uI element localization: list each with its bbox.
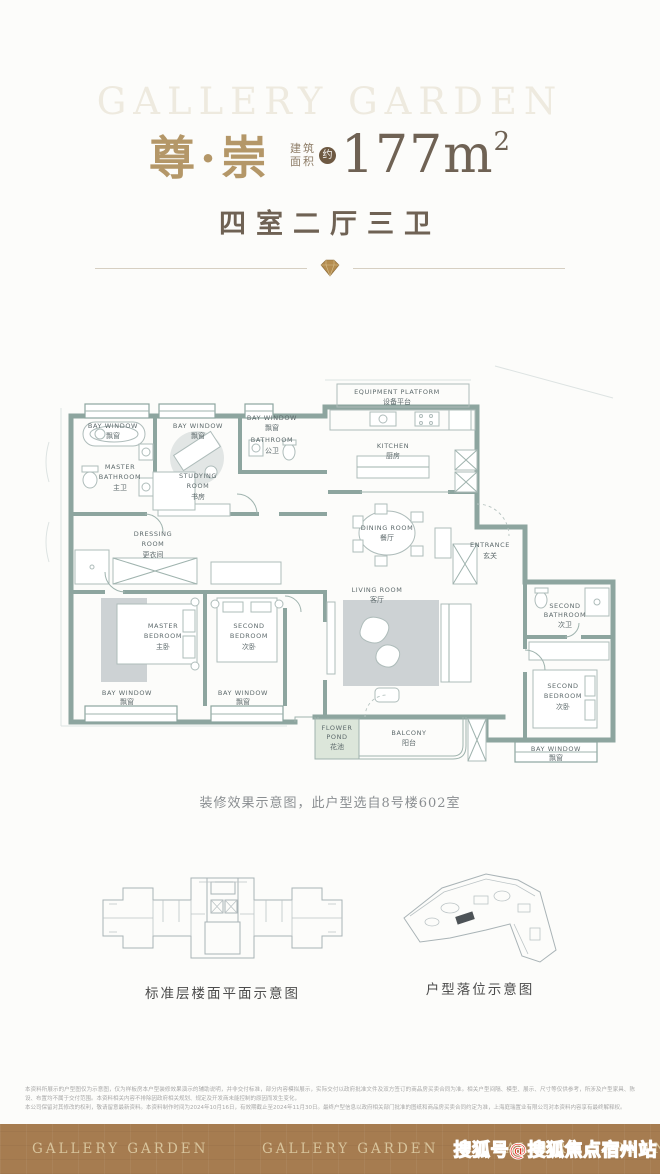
svg-text:FLOWER: FLOWER (322, 724, 353, 732)
svg-text:MASTER: MASTER (148, 622, 178, 630)
floorplan-drawing: BAY WINDOW 飘窗 BAY WINDOW 飘窗 BAY WINDOW 飘… (25, 352, 635, 800)
svg-text:厨房: 厨房 (386, 451, 400, 460)
svg-text:次卧: 次卧 (242, 642, 256, 651)
svg-text:BATHROOM: BATHROOM (99, 473, 141, 481)
divider-line-left (95, 268, 307, 269)
svg-text:BATHROOM: BATHROOM (544, 611, 586, 619)
svg-text:主卫: 主卫 (113, 483, 127, 492)
svg-text:EQUIPMENT PLATFORM: EQUIPMENT PLATFORM (354, 388, 440, 396)
disclaimer: 本资料所展示的户型图仅为示意图，仅为样板房本户型装修效果演示的辅助说明，并非交付… (25, 1086, 635, 1113)
svg-text:飘窗: 飘窗 (549, 753, 563, 762)
brand-watermark: GALLERY GARDEN (0, 80, 660, 123)
svg-text:ROOM: ROOM (142, 540, 165, 548)
site-location-caption: 户型落位示意图 (390, 978, 570, 998)
svg-text:LIVING ROOM: LIVING ROOM (352, 586, 403, 594)
svg-text:ROOM: ROOM (187, 482, 210, 490)
svg-text:设备平台: 设备平台 (383, 397, 411, 406)
svg-text:DRESSING: DRESSING (134, 530, 173, 538)
svg-text:SECOND: SECOND (233, 622, 264, 630)
svg-text:BAY WINDOW: BAY WINDOW (247, 414, 297, 422)
svg-text:STUDYING: STUDYING (179, 472, 217, 480)
svg-text:主卧: 主卧 (156, 642, 170, 651)
master-bedroom-furniture (101, 598, 199, 682)
page-title: 尊·崇 (149, 122, 272, 188)
svg-text:POND: POND (326, 733, 347, 741)
svg-text:BAY WINDOW: BAY WINDOW (173, 422, 223, 430)
svg-text:更衣间: 更衣间 (143, 550, 164, 559)
second-bedroom-furniture (211, 598, 283, 662)
svg-text:BAY WINDOW: BAY WINDOW (88, 422, 138, 430)
svg-text:阳台: 阳台 (402, 738, 416, 747)
svg-text:书房: 书房 (191, 492, 205, 501)
svg-text:SECOND: SECOND (547, 682, 578, 690)
svg-text:BEDROOM: BEDROOM (544, 692, 582, 700)
svg-text:BEDROOM: BEDROOM (230, 632, 268, 640)
svg-text:BAY WINDOW: BAY WINDOW (531, 745, 581, 753)
sohu-watermark: 搜狐号@搜狐焦点宿州站 (454, 1136, 658, 1162)
room-summary: 四室二厅三卫 (0, 202, 660, 241)
site-location-diagram (390, 858, 570, 976)
svg-text:次卫: 次卫 (558, 620, 572, 629)
disclaimer-line-2: 本公司保留对其修改的权利，敬请留意最新资料。本资料制作时间为2024年10月16… (25, 1104, 635, 1113)
svg-text:玄关: 玄关 (483, 551, 497, 560)
living-room-furniture (327, 600, 471, 702)
floor-plate-diagram (95, 862, 350, 974)
svg-text:BATHROOM: BATHROOM (251, 436, 293, 444)
divider (0, 258, 660, 278)
unit-location-marker (455, 911, 475, 924)
svg-text:ENTRANCE: ENTRANCE (470, 541, 510, 549)
area-value: 177m2 (341, 129, 511, 181)
gem-icon (317, 258, 343, 278)
svg-text:飘窗: 飘窗 (265, 423, 279, 432)
svg-text:公卫: 公卫 (265, 447, 279, 455)
svg-text:飘窗: 飘窗 (191, 431, 205, 440)
svg-text:次卧: 次卧 (556, 702, 570, 711)
svg-text:飘窗: 飘窗 (236, 697, 250, 706)
area-label: 建筑 面积 (290, 142, 316, 168)
footer-logo-2: GALLERY GARDEN (262, 1141, 438, 1157)
decor-note: 装修效果示意图，此户型选自8号楼602室 (0, 792, 660, 811)
title-row: 尊·崇 建筑 面积 约 177m2 (0, 122, 660, 188)
svg-text:BAY WINDOW: BAY WINDOW (102, 689, 152, 697)
approx-badge: 约 (319, 147, 336, 164)
svg-text:MASTER: MASTER (105, 463, 135, 471)
footer-logo-1: GALLERY GARDEN (32, 1141, 208, 1157)
svg-text:客厅: 客厅 (370, 595, 384, 604)
svg-text:KITCHEN: KITCHEN (377, 442, 409, 450)
svg-text:BALCONY: BALCONY (391, 729, 426, 737)
svg-text:飘窗: 飘窗 (120, 697, 134, 706)
disclaimer-line-1: 本资料所展示的户型图仅为示意图，仅为样板房本户型装修效果演示的辅助说明，并非交付… (25, 1086, 635, 1104)
svg-text:花池: 花池 (330, 742, 344, 751)
svg-text:飘窗: 飘窗 (106, 431, 120, 440)
area-group: 建筑 面积 约 177m2 (290, 129, 511, 181)
poster-page: GALLERY GARDEN 尊·崇 建筑 面积 约 177m2 四室二厅三卫 (0, 0, 660, 1174)
svg-text:餐厅: 餐厅 (380, 533, 394, 542)
divider-line-right (353, 268, 565, 269)
svg-text:DINING ROOM: DINING ROOM (361, 524, 414, 532)
svg-text:BEDROOM: BEDROOM (144, 632, 182, 640)
svg-text:BAY WINDOW: BAY WINDOW (218, 689, 268, 697)
floor-plate-caption: 标准层楼面平面示意图 (95, 982, 350, 1002)
svg-text:SECOND: SECOND (549, 602, 580, 610)
